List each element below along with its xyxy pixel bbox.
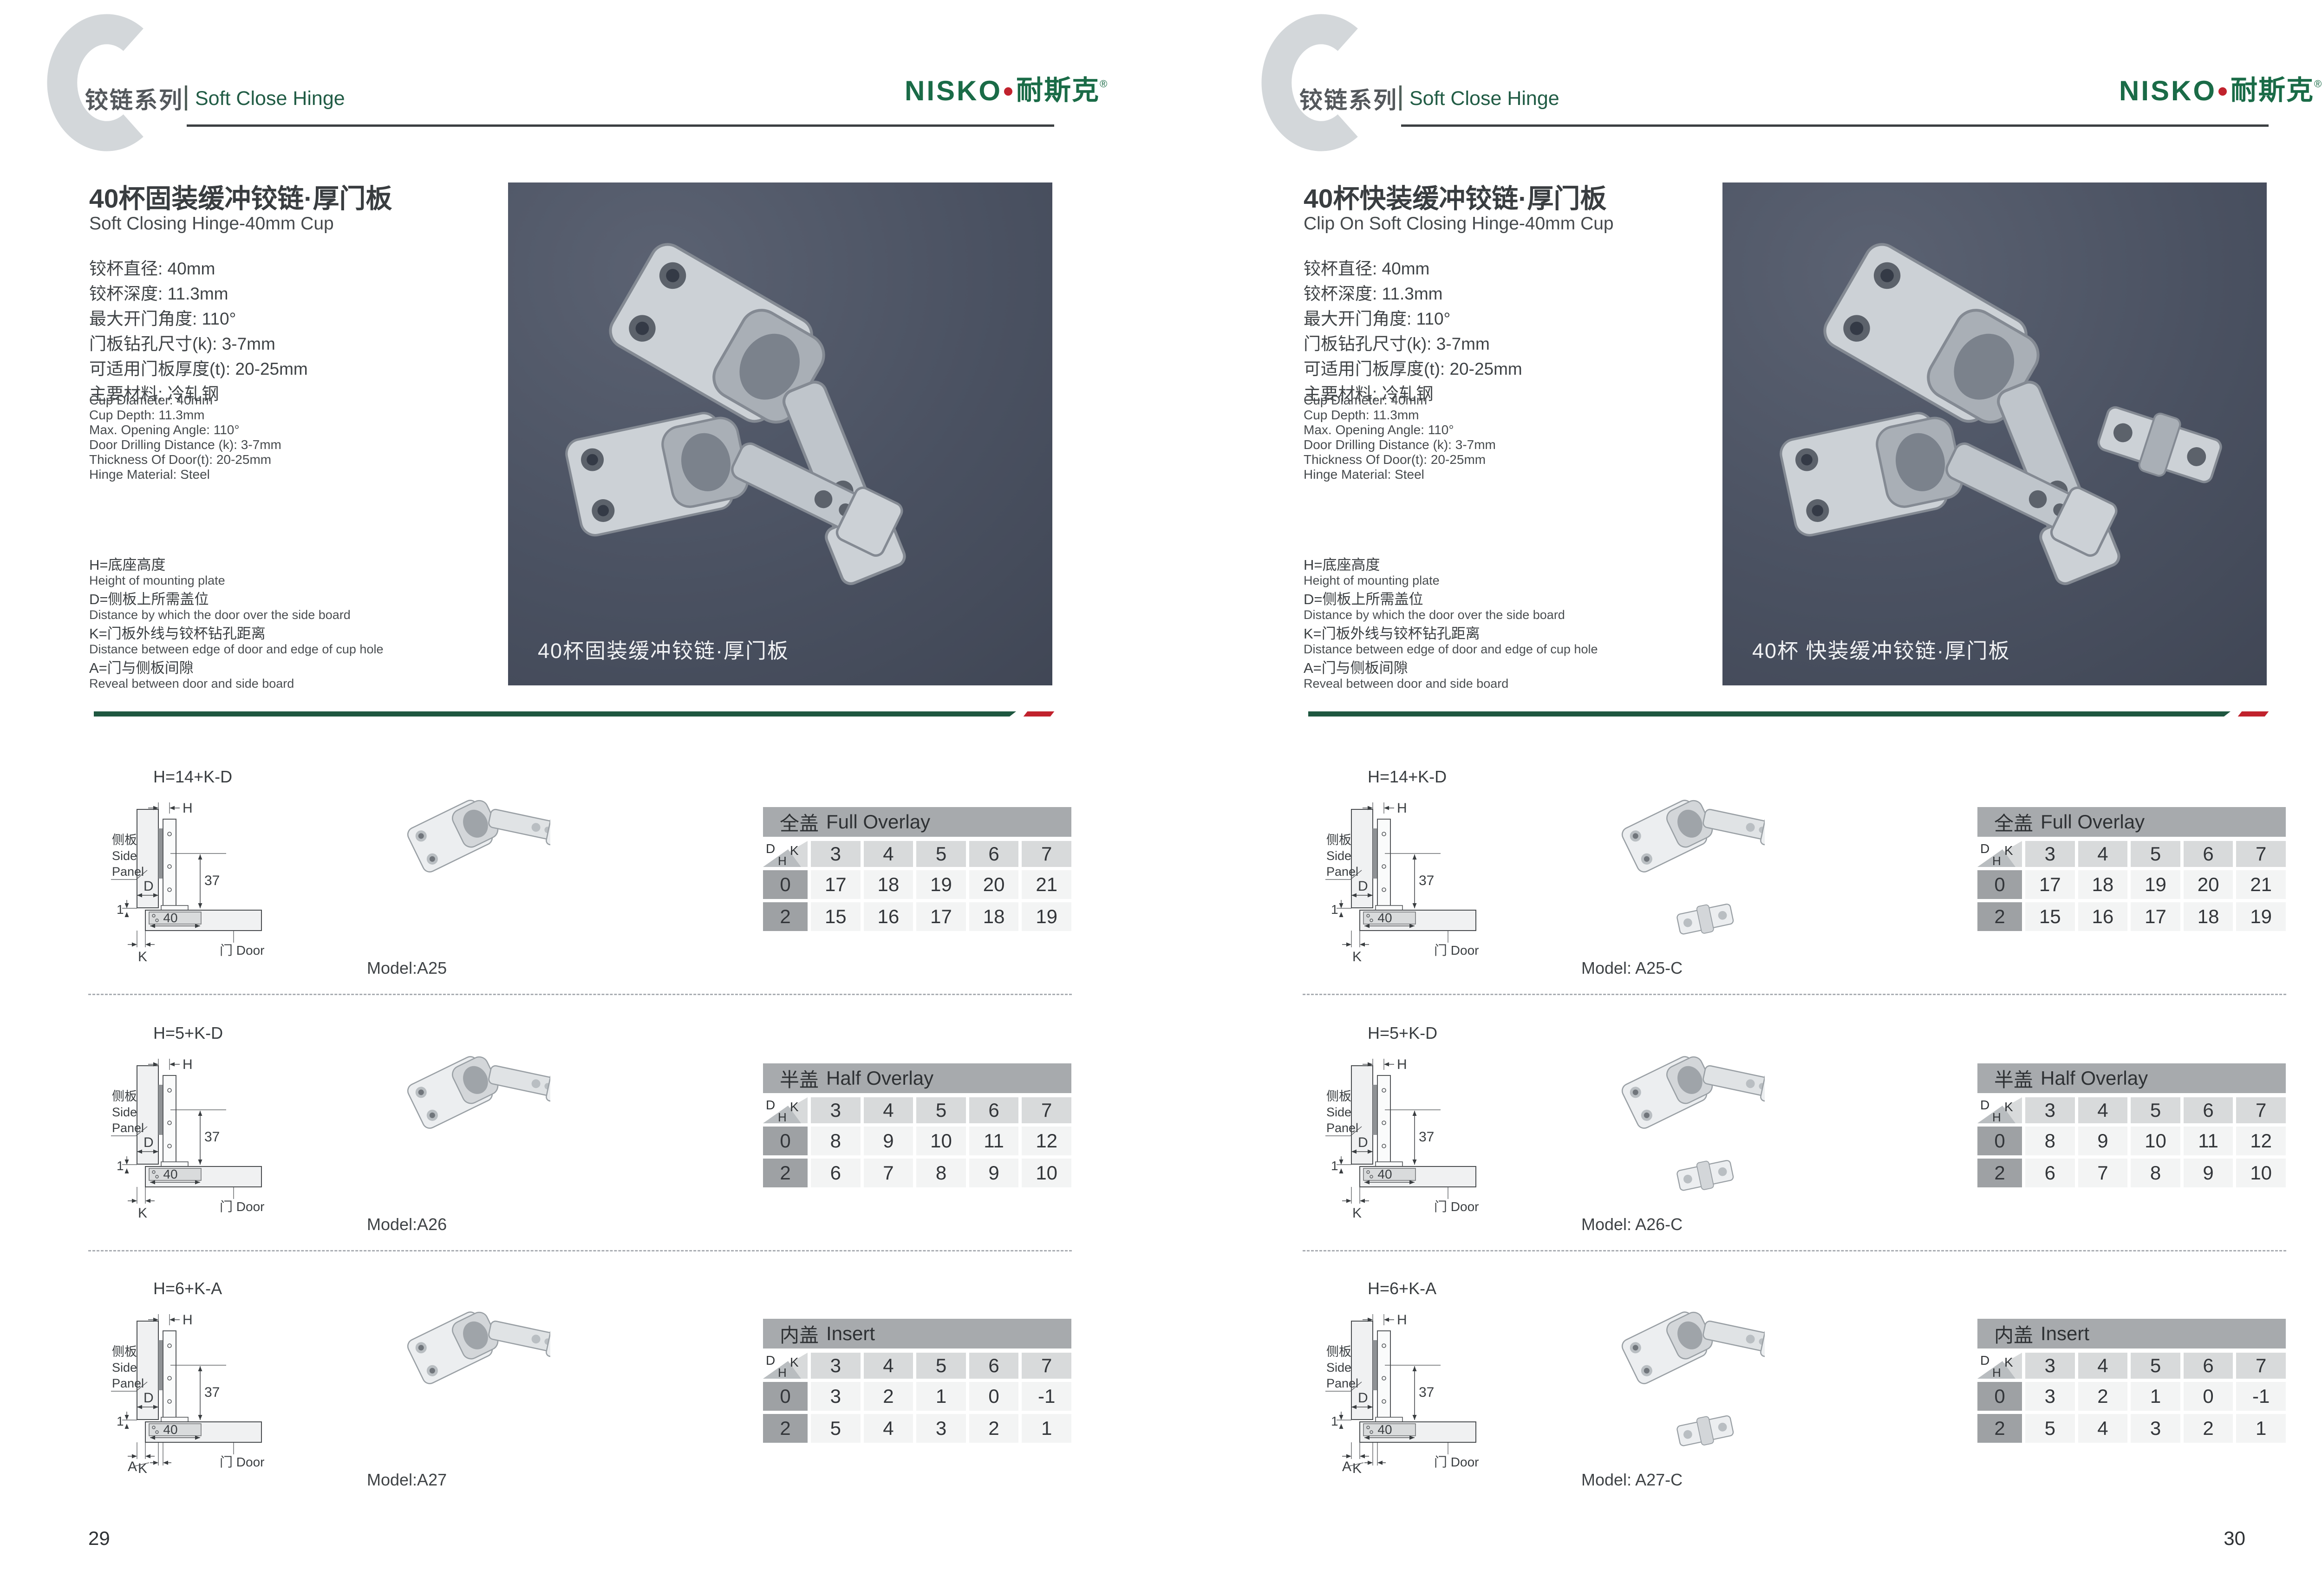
value-cell: 0 [2184, 1382, 2233, 1411]
svg-text:37: 37 [204, 1385, 220, 1400]
table-title-cn: 全盖 [1994, 808, 2033, 836]
k-header-cell: 5 [2131, 1353, 2180, 1379]
table-title-en: Insert [2041, 1322, 2089, 1345]
model-label: Model: A27-C [1581, 1470, 1683, 1490]
photo-caption: 40杯 快装缓冲铰链·厚门板 [1752, 634, 2010, 664]
svg-text:D: D [143, 879, 154, 894]
k-header-cell: 6 [2184, 1353, 2233, 1379]
k-header-cell: 6 [2184, 841, 2233, 867]
svg-text:40: 40 [1377, 1167, 1392, 1181]
k-header-cell: 3 [811, 841, 861, 867]
k-header-cell: 4 [864, 1097, 913, 1123]
value-cell: 4 [864, 1414, 913, 1443]
value-cell: 18 [864, 870, 913, 899]
value-cell: 11 [969, 1127, 1019, 1155]
spec-line-en: Cup Depth: 11.3mm [89, 408, 281, 423]
model-label: Model:A27 [367, 1470, 447, 1490]
spec-line-en: Cup Diameter: 40mm [1304, 393, 1496, 408]
installation-diagram: H37D140门 DoorK侧板SidePanel [1324, 784, 1523, 970]
svg-text:侧板: 侧板 [112, 1345, 137, 1359]
value-cell: 9 [969, 1159, 1019, 1187]
svg-text:H: H [1992, 854, 2001, 867]
svg-text:D: D [1980, 841, 1989, 856]
value-cell: 2 [969, 1414, 1019, 1443]
value-cell: 18 [2078, 870, 2128, 899]
svg-text:1: 1 [1331, 902, 1338, 917]
svg-text:D: D [143, 1135, 154, 1150]
hinge-product-image [392, 1273, 550, 1450]
table-corner-cell: DKH [763, 841, 808, 867]
table-corner-cell: DKH [763, 1353, 808, 1379]
value-cell: 1 [916, 1382, 966, 1411]
value-cell: -1 [1022, 1382, 1071, 1411]
svg-text:H: H [778, 854, 787, 867]
spec-line-cn: 最大开门角度: 110° [1304, 306, 1522, 332]
svg-text:K: K [790, 1355, 799, 1369]
page-number: 30 [2224, 1527, 2245, 1550]
table-grid: DKH345670891011122678910 [763, 1097, 1071, 1187]
table-title-cn: 内盖 [780, 1320, 819, 1348]
product-title-en: Soft Closing Hinge-40mm Cup [89, 214, 334, 234]
value-cell: 2 [864, 1382, 913, 1411]
legend-term-cn: K=门板外线与铰杯钻孔距离 [1304, 625, 1598, 642]
series-divider [185, 85, 187, 111]
svg-text:H: H [183, 1312, 193, 1328]
spec-line-cn: 铰杯深度: 11.3mm [1304, 281, 1522, 306]
table-title-bar: 半盖Half Overlay [763, 1063, 1071, 1093]
legend-term-en: Height of mounting plate [89, 573, 383, 588]
svg-text:侧板: 侧板 [112, 1089, 137, 1103]
table-title-bar: 内盖Insert [763, 1319, 1071, 1348]
value-cell: 10 [2236, 1159, 2286, 1187]
svg-text:门 Door: 门 Door [1434, 943, 1479, 958]
dimension-legend: H=底座高度 Height of mounting plate D=侧板上所需盖… [1304, 556, 1598, 694]
svg-text:40: 40 [163, 1422, 177, 1437]
hinge-product-image [392, 762, 550, 938]
h-label-cell: 2 [763, 1159, 808, 1187]
value-cell: 11 [2184, 1127, 2233, 1155]
value-cell: 5 [2025, 1414, 2075, 1443]
header-rule [187, 124, 1054, 127]
value-cell: 8 [916, 1159, 966, 1187]
value-cell: 16 [864, 902, 913, 931]
overlay-table: 半盖Half OverlayDKH345670891011122678910 [1977, 1063, 2286, 1187]
value-cell: 15 [811, 902, 861, 931]
svg-text:K: K [2004, 843, 2013, 858]
catalog-spread: 铰链系列 Soft Close Hinge NISKO 耐斯克 ® 40杯固装缓… [0, 0, 2322, 1596]
spec-line-cn: 门板钻孔尺寸(k): 3-7mm [89, 332, 308, 357]
value-cell: 19 [916, 870, 966, 899]
legend-term-cn: K=门板外线与铰杯钻孔距离 [89, 625, 383, 642]
svg-text:K: K [138, 1461, 147, 1476]
k-header-cell: 7 [1022, 1097, 1071, 1123]
h-label-cell: 0 [763, 1382, 808, 1411]
value-cell: 0 [969, 1382, 1019, 1411]
svg-text:H: H [1992, 1110, 2001, 1123]
value-cell: 19 [1022, 902, 1071, 931]
svg-text:Side: Side [1326, 1361, 1351, 1375]
table-title-bar: 全盖Full Overlay [1977, 807, 2286, 837]
series-title-cn: 铰链系列 [1299, 82, 1398, 115]
overlay-table: 全盖Full OverlayDKH34567017181920212151617… [1977, 807, 2286, 931]
hinge-product-image [392, 1018, 550, 1194]
spec-line-cn: 可适用门板厚度(t): 20-25mm [1304, 357, 1522, 382]
svg-text:Panel: Panel [1326, 865, 1358, 879]
svg-text:D: D [1980, 1353, 1989, 1368]
k-header-cell: 6 [969, 841, 1019, 867]
table-title-cn: 半盖 [780, 1064, 819, 1093]
svg-text:门 Door: 门 Door [1434, 1199, 1479, 1214]
svg-text:Side: Side [112, 1105, 137, 1119]
k-header-cell: 6 [969, 1097, 1019, 1123]
table-title-cn: 全盖 [780, 808, 819, 836]
k-header-cell: 6 [2184, 1097, 2233, 1123]
svg-text:40: 40 [163, 1167, 177, 1181]
k-header-cell: 4 [2078, 1353, 2128, 1379]
svg-text:Side: Side [1326, 849, 1351, 863]
svg-text:H: H [778, 1110, 787, 1123]
value-cell: 3 [2025, 1382, 2075, 1411]
value-cell: 1 [2236, 1414, 2286, 1443]
value-cell: 4 [2078, 1414, 2128, 1443]
spec-line-en: Max. Opening Angle: 110° [89, 423, 281, 437]
k-header-cell: 7 [1022, 1353, 1071, 1379]
spec-line-en: Door Drilling Distance (k): 3-7mm [89, 437, 281, 452]
svg-text:K: K [138, 1205, 147, 1221]
value-cell: 9 [864, 1127, 913, 1155]
series-title-en: Soft Close Hinge [1409, 87, 1559, 110]
svg-text:D: D [1980, 1098, 1989, 1112]
row-divider [88, 994, 1072, 995]
value-cell: 1 [1022, 1414, 1071, 1443]
brand-logo: NISKO 耐斯克 ® [2119, 77, 2322, 105]
value-cell: 16 [2078, 902, 2128, 931]
model-label: Model: A26-C [1581, 1215, 1683, 1234]
specs-list-en: Cup Diameter: 40mmCup Depth: 11.3mmMax. … [1304, 393, 1496, 482]
installation-diagram: H37D140门 DoorK侧板SidePanel [109, 1040, 309, 1226]
svg-text:Panel: Panel [112, 1376, 144, 1390]
spec-line-cn: 铰杯深度: 11.3mm [89, 281, 308, 306]
table-corner-cell: DKH [1977, 1097, 2022, 1123]
legend-term-cn: D=侧板上所需盖位 [1304, 591, 1598, 608]
svg-text:40: 40 [163, 911, 177, 925]
brand-cn: 耐斯克 [2231, 77, 2314, 104]
svg-text:门 Door: 门 Door [1434, 1455, 1479, 1469]
value-cell: 20 [969, 870, 1019, 899]
product-row: H=14+K-D H37D140门 DoorK侧板SidePanel Model… [1214, 762, 2322, 994]
brand-red-dot-icon [1004, 87, 1012, 96]
k-header-cell: 7 [2236, 841, 2286, 867]
value-cell: 6 [811, 1159, 861, 1187]
value-cell: 8 [811, 1127, 861, 1155]
table-title-en: Full Overlay [2041, 811, 2145, 833]
k-header-cell: 4 [2078, 841, 2128, 867]
h-label-cell: 2 [1977, 1159, 2022, 1187]
svg-text:1: 1 [117, 902, 124, 917]
svg-text:侧板: 侧板 [112, 833, 137, 847]
model-label: Model:A25 [367, 958, 447, 978]
svg-text:侧板: 侧板 [1326, 833, 1351, 847]
product-row: H=6+K-A H37D140门 DoorKA侧板SidePanel Model… [1214, 1273, 2322, 1505]
svg-text:门 Door: 门 Door [220, 1199, 264, 1214]
spec-line-cn: 门板钻孔尺寸(k): 3-7mm [1304, 332, 1522, 357]
svg-text:37: 37 [1419, 1385, 1434, 1400]
row-divider [1303, 1250, 2286, 1251]
svg-text:H: H [183, 801, 193, 816]
k-header-cell: 6 [969, 1353, 1019, 1379]
overlay-table: 内盖InsertDKH3456703210-1254321 [1977, 1319, 2286, 1443]
svg-text:37: 37 [1419, 1129, 1434, 1145]
h-label-cell: 2 [763, 1414, 808, 1443]
spec-line-cn: 铰杯直径: 40mm [1304, 256, 1522, 281]
h-label-cell: 0 [1977, 1382, 2022, 1411]
hinge-product-image [1607, 1018, 1765, 1194]
brand-latin: NISKO [2119, 77, 2217, 105]
svg-text:K: K [1352, 1461, 1362, 1476]
h-label-cell: 2 [1977, 902, 2022, 931]
value-cell: 8 [2025, 1127, 2075, 1155]
spec-line-cn: 可适用门板厚度(t): 20-25mm [89, 357, 308, 382]
svg-text:K: K [2004, 1355, 2013, 1369]
legend-term-cn: A=门与侧板间隙 [89, 659, 383, 677]
value-cell: 20 [2184, 870, 2233, 899]
value-cell: 9 [2078, 1127, 2128, 1155]
spec-line-en: Door Drilling Distance (k): 3-7mm [1304, 437, 1496, 452]
legend-item: H=底座高度 Height of mounting plate [1304, 556, 1598, 588]
value-cell: 12 [1022, 1127, 1071, 1155]
svg-text:K: K [790, 1100, 799, 1114]
svg-text:门 Door: 门 Door [220, 943, 264, 958]
overlay-table: 全盖Full OverlayDKH34567017181920212151617… [763, 807, 1071, 931]
overlay-table: 内盖InsertDKH3456703210-1254321 [763, 1319, 1071, 1443]
svg-text:K: K [2004, 1100, 2013, 1114]
legend-item: K=门板外线与铰杯钻孔距离 Distance between edge of d… [89, 625, 383, 657]
svg-text:37: 37 [1419, 873, 1434, 888]
photo-caption: 40杯固装缓冲铰链·厚门板 [538, 634, 789, 664]
k-header-cell: 5 [916, 1097, 966, 1123]
legend-term-en: Reveal between door and side board [1304, 677, 1598, 691]
legend-term-en: Distance by which the door over the side… [89, 608, 383, 622]
svg-text:D: D [766, 1353, 775, 1368]
svg-text:Panel: Panel [112, 865, 144, 879]
spec-line-en: Hinge Material: Steel [1304, 467, 1496, 482]
value-cell: 18 [2184, 902, 2233, 931]
k-header-cell: 5 [2131, 841, 2180, 867]
section-separator-red [2238, 711, 2269, 717]
catalog-page: 铰链系列 Soft Close Hinge NISKO 耐斯克 ® 40杯固装缓… [0, 0, 1122, 1596]
k-header-cell: 7 [1022, 841, 1071, 867]
header-rule [1401, 124, 2269, 127]
product-row: H=5+K-D H37D140门 DoorK侧板SidePanel Model:… [0, 1018, 1122, 1250]
brand-latin: NISKO [905, 77, 1002, 105]
svg-text:37: 37 [204, 1129, 220, 1145]
model-label: Model:A26 [367, 1215, 447, 1234]
product-photo-art [508, 182, 1052, 685]
k-header-cell: 5 [916, 841, 966, 867]
value-cell: 12 [2236, 1127, 2286, 1155]
legend-term-en: Reveal between door and side board [89, 677, 383, 691]
section-separator-red [1024, 711, 1055, 717]
table-grid: DKH345670171819202121516171819 [1977, 841, 2286, 931]
spec-line-en: Max. Opening Angle: 110° [1304, 423, 1496, 437]
hinge-product-image [1607, 762, 1765, 938]
value-cell: 2 [2184, 1414, 2233, 1443]
legend-item: D=侧板上所需盖位 Distance by which the door ove… [1304, 591, 1598, 622]
svg-text:1: 1 [117, 1414, 124, 1428]
table-grid: DKH3456703210-1254321 [763, 1353, 1071, 1443]
series-title-cn: 铰链系列 [85, 82, 183, 115]
product-photo: 40杯 快装缓冲铰链·厚门板 [1722, 182, 2267, 685]
h-label-cell: 2 [1977, 1414, 2022, 1443]
table-title-en: Half Overlay [2041, 1067, 2148, 1089]
value-cell: 21 [2236, 870, 2286, 899]
product-title-cn: 40杯快装缓冲铰链·厚门板 [1304, 177, 1606, 215]
catalog-page: 铰链系列 Soft Close Hinge NISKO 耐斯克 ® 40杯快装缓… [1214, 0, 2322, 1596]
svg-text:40: 40 [1377, 1422, 1392, 1437]
value-cell: 21 [1022, 870, 1071, 899]
legend-term-en: Distance between edge of door and edge o… [1304, 642, 1598, 657]
dimension-legend: H=底座高度 Height of mounting plate D=侧板上所需盖… [89, 556, 383, 694]
value-cell: 3 [2131, 1414, 2180, 1443]
svg-text:K: K [1352, 1205, 1362, 1221]
h-label-cell: 0 [1977, 870, 2022, 899]
value-cell: 9 [2184, 1159, 2233, 1187]
table-grid: DKH345670171819202121516171819 [763, 841, 1071, 931]
value-cell: 10 [2131, 1127, 2180, 1155]
value-cell: 19 [2236, 902, 2286, 931]
svg-text:Panel: Panel [1326, 1376, 1358, 1390]
brand-logo: NISKO 耐斯克 ® [905, 77, 1107, 105]
table-title-bar: 内盖Insert [1977, 1319, 2286, 1348]
spec-line-en: Thickness Of Door(t): 20-25mm [89, 452, 281, 467]
legend-term-cn: A=门与侧板间隙 [1304, 659, 1598, 677]
row-divider [88, 1250, 1072, 1251]
legend-term-en: Distance between edge of door and edge o… [89, 642, 383, 657]
svg-text:D: D [1358, 879, 1368, 894]
legend-item: A=门与侧板间隙 Reveal between door and side bo… [89, 659, 383, 691]
value-cell: 17 [811, 870, 861, 899]
svg-text:D: D [1358, 1135, 1368, 1150]
specs-list-cn: 铰杯直径: 40mm铰杯深度: 11.3mm最大开门角度: 110°门板钻孔尺寸… [89, 256, 308, 407]
table-title-bar: 半盖Half Overlay [1977, 1063, 2286, 1093]
k-header-cell: 4 [864, 1353, 913, 1379]
value-cell: 19 [2131, 870, 2180, 899]
legend-item: K=门板外线与铰杯钻孔距离 Distance between edge of d… [1304, 625, 1598, 657]
overlay-table: 半盖Half OverlayDKH345670891011122678910 [763, 1063, 1071, 1187]
value-cell: 7 [864, 1159, 913, 1187]
table-grid: DKH3456703210-1254321 [1977, 1353, 2286, 1443]
value-cell: 15 [2025, 902, 2075, 931]
svg-text:H: H [778, 1366, 787, 1379]
value-cell: 17 [2025, 870, 2075, 899]
spec-line-en: Cup Depth: 11.3mm [1304, 408, 1496, 423]
brand-cn: 耐斯克 [1016, 77, 1100, 104]
spec-line-cn: 铰杯直径: 40mm [89, 256, 308, 281]
page-number: 29 [88, 1527, 110, 1550]
model-label: Model: A25-C [1581, 958, 1683, 978]
hinge-product-image [1607, 1273, 1765, 1450]
installation-diagram: H37D140门 DoorK侧板SidePanel [109, 784, 309, 970]
svg-text:1: 1 [117, 1159, 124, 1173]
legend-term-cn: H=底座高度 [1304, 556, 1598, 573]
value-cell: 5 [811, 1414, 861, 1443]
svg-text:Panel: Panel [112, 1121, 144, 1135]
k-header-cell: 3 [811, 1353, 861, 1379]
k-header-cell: 4 [864, 841, 913, 867]
value-cell: -1 [2236, 1382, 2286, 1411]
table-corner-cell: DKH [763, 1097, 808, 1123]
svg-text:侧板: 侧板 [1326, 1345, 1351, 1359]
svg-text:H: H [1397, 1057, 1407, 1072]
svg-text:H: H [1992, 1366, 2001, 1379]
series-divider [1399, 85, 1402, 111]
legend-item: H=底座高度 Height of mounting plate [89, 556, 383, 588]
svg-text:门 Door: 门 Door [220, 1455, 264, 1469]
value-cell: 1 [2131, 1382, 2180, 1411]
h-label-cell: 0 [763, 870, 808, 899]
value-cell: 10 [916, 1127, 966, 1155]
installation-diagram: H37D140门 DoorKA侧板SidePanel [1324, 1296, 1523, 1481]
brand-registered-mark: ® [1100, 78, 1107, 90]
legend-term-en: Height of mounting plate [1304, 573, 1598, 588]
legend-term-en: Distance by which the door over the side… [1304, 608, 1598, 622]
spec-line-en: Cup Diameter: 40mm [89, 393, 281, 408]
value-cell: 6 [2025, 1159, 2075, 1187]
k-header-cell: 3 [2025, 1353, 2075, 1379]
svg-text:D: D [143, 1390, 154, 1406]
section-separator-green [1308, 711, 2231, 717]
table-corner-cell: DKH [1977, 1353, 2022, 1379]
legend-term-cn: H=底座高度 [89, 556, 383, 573]
h-label-cell: 0 [763, 1127, 808, 1155]
k-header-cell: 3 [811, 1097, 861, 1123]
svg-text:A: A [128, 1459, 137, 1474]
product-title-en: Clip On Soft Closing Hinge-40mm Cup [1304, 214, 1614, 234]
legend-item: D=侧板上所需盖位 Distance by which the door ove… [89, 591, 383, 622]
spec-line-cn: 最大开门角度: 110° [89, 306, 308, 332]
svg-text:D: D [1358, 1390, 1368, 1406]
legend-term-cn: D=侧板上所需盖位 [89, 591, 383, 608]
value-cell: 8 [2131, 1159, 2180, 1187]
value-cell: 3 [916, 1414, 966, 1443]
h-label-cell: 0 [1977, 1127, 2022, 1155]
k-header-cell: 7 [2236, 1353, 2286, 1379]
brand-red-dot-icon [2218, 87, 2227, 96]
value-cell: 7 [2078, 1159, 2128, 1187]
series-title-en: Soft Close Hinge [195, 87, 345, 110]
svg-text:K: K [1352, 949, 1362, 964]
svg-text:D: D [766, 841, 775, 856]
product-row: H=14+K-D H37D140门 DoorK侧板SidePanel Model… [0, 762, 1122, 994]
installation-diagram: H37D140门 DoorKA侧板SidePanel [109, 1296, 309, 1481]
table-title-en: Full Overlay [826, 811, 930, 833]
product-row: H=5+K-D H37D140门 DoorK侧板SidePanel Model:… [1214, 1018, 2322, 1250]
svg-text:1: 1 [1331, 1414, 1338, 1428]
table-grid: DKH345670891011122678910 [1977, 1097, 2286, 1187]
svg-text:H: H [1397, 801, 1407, 816]
value-cell: 3 [811, 1382, 861, 1411]
svg-text:37: 37 [204, 873, 220, 888]
section-separator-green [94, 711, 1016, 717]
row-divider [1303, 994, 2286, 995]
spec-line-en: Hinge Material: Steel [89, 467, 281, 482]
svg-text:D: D [766, 1098, 775, 1112]
spec-line-en: Thickness Of Door(t): 20-25mm [1304, 452, 1496, 467]
k-header-cell: 5 [916, 1353, 966, 1379]
svg-text:1: 1 [1331, 1159, 1338, 1173]
brand-registered-mark: ® [2314, 78, 2322, 90]
table-corner-cell: DKH [1977, 841, 2022, 867]
